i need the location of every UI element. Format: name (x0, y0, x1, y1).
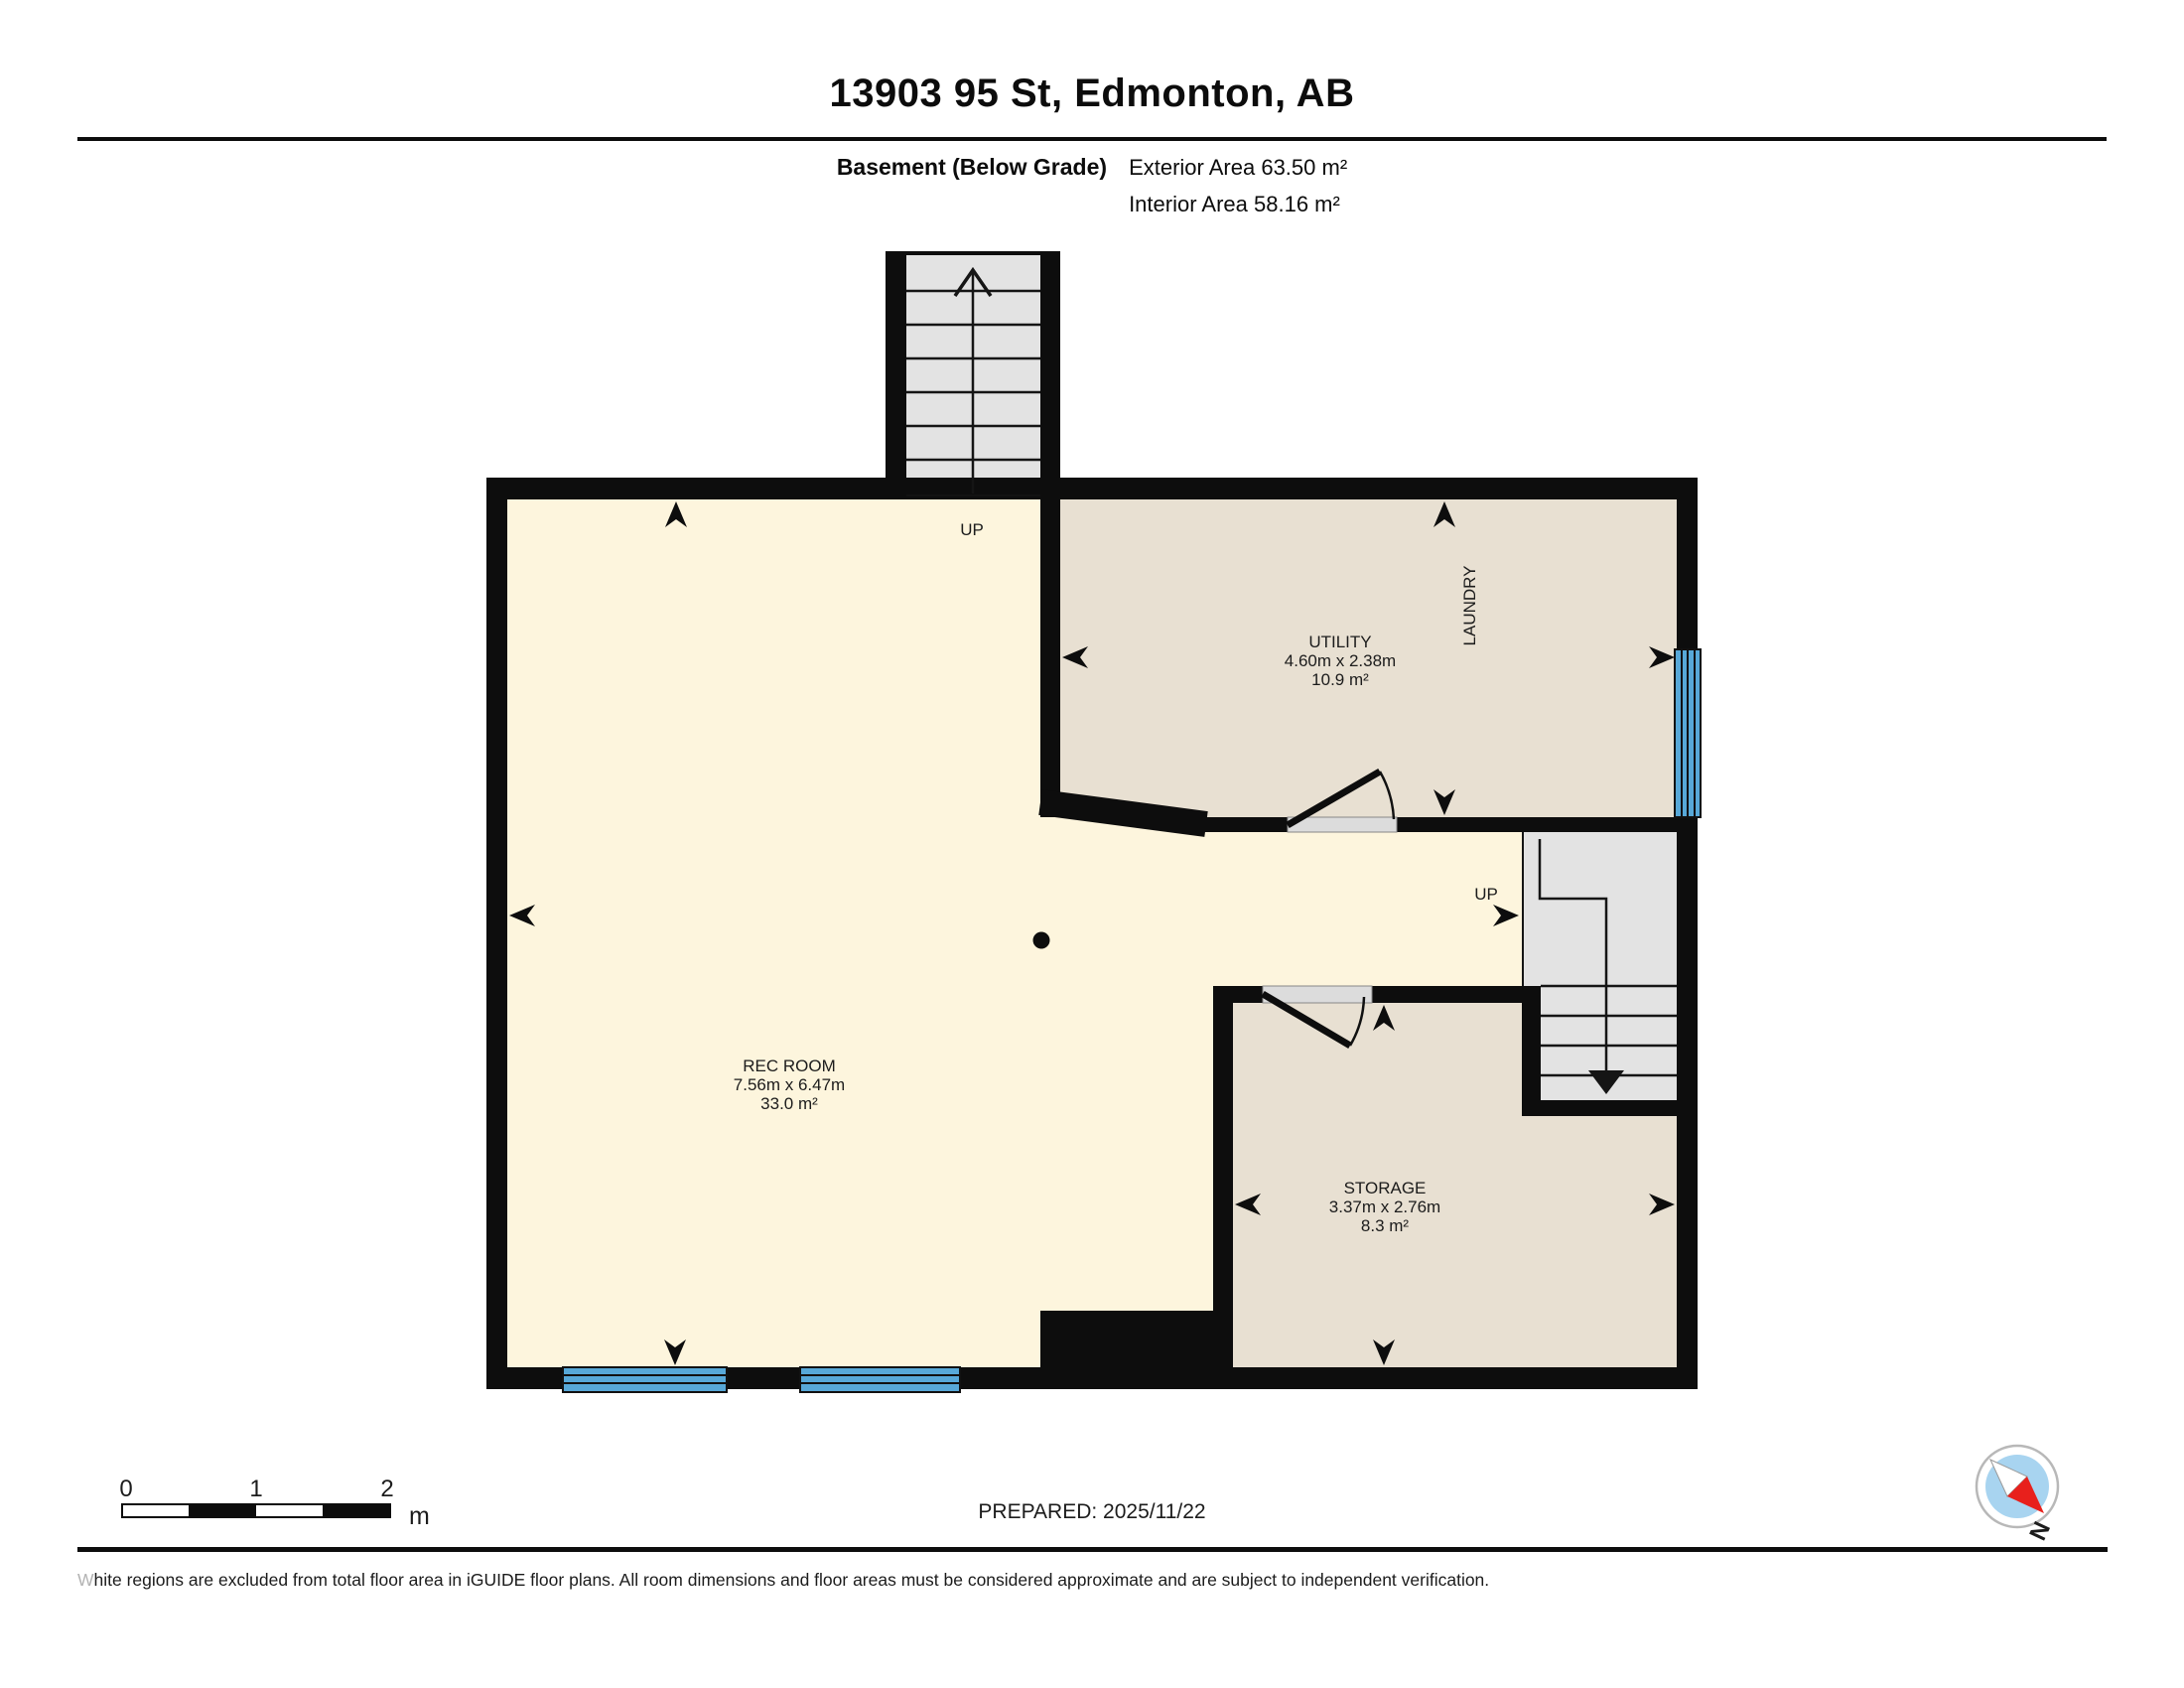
svg-text:STORAGE: STORAGE (1344, 1179, 1427, 1197)
svg-text:4.60m x 2.38m: 4.60m x 2.38m (1285, 651, 1396, 670)
up-label-right-stairs: UP (1474, 885, 1498, 904)
svg-text:7.56m x 6.47m: 7.56m x 6.47m (734, 1075, 845, 1094)
svg-text:UTILITY: UTILITY (1308, 633, 1371, 651)
disclaimer: White regions are excluded from total fl… (77, 1570, 1489, 1590)
prepared-date: PREPARED: 2025/11/22 (978, 1500, 1205, 1523)
svg-text:8.3 m²: 8.3 m² (1361, 1216, 1410, 1235)
svg-text:3.37m x 2.76m: 3.37m x 2.76m (1329, 1197, 1440, 1216)
floor-plan-canvas: UTILITY 4.60m x 2.38m 10.9 m² LAUNDRY RE… (0, 0, 2184, 1688)
room-label-laundry: LAUNDRY (1460, 566, 1479, 646)
compass: N (1977, 1446, 2058, 1544)
window-bottom-right (800, 1367, 960, 1392)
up-label-top-stairs: UP (960, 520, 984, 539)
svg-text:1: 1 (249, 1476, 262, 1502)
svg-text:m: m (409, 1502, 430, 1530)
footer-divider (77, 1547, 2108, 1552)
window-right (1675, 649, 1701, 817)
svg-text:REC ROOM: REC ROOM (743, 1056, 836, 1075)
floor-post-dot (1033, 932, 1050, 949)
floor-plan-page: 13903 95 St, Edmonton, AB Basement (Belo… (0, 0, 2184, 1688)
header-divider (77, 137, 2107, 141)
svg-text:0: 0 (119, 1476, 132, 1502)
svg-text:10.9 m²: 10.9 m² (1311, 670, 1369, 689)
foundation-bumpout (1040, 1311, 1233, 1389)
svg-text:2: 2 (380, 1476, 393, 1502)
svg-text:33.0 m²: 33.0 m² (760, 1094, 818, 1113)
scale-bar: 0 1 2 m (119, 1476, 430, 1530)
window-bottom-left (563, 1367, 727, 1392)
